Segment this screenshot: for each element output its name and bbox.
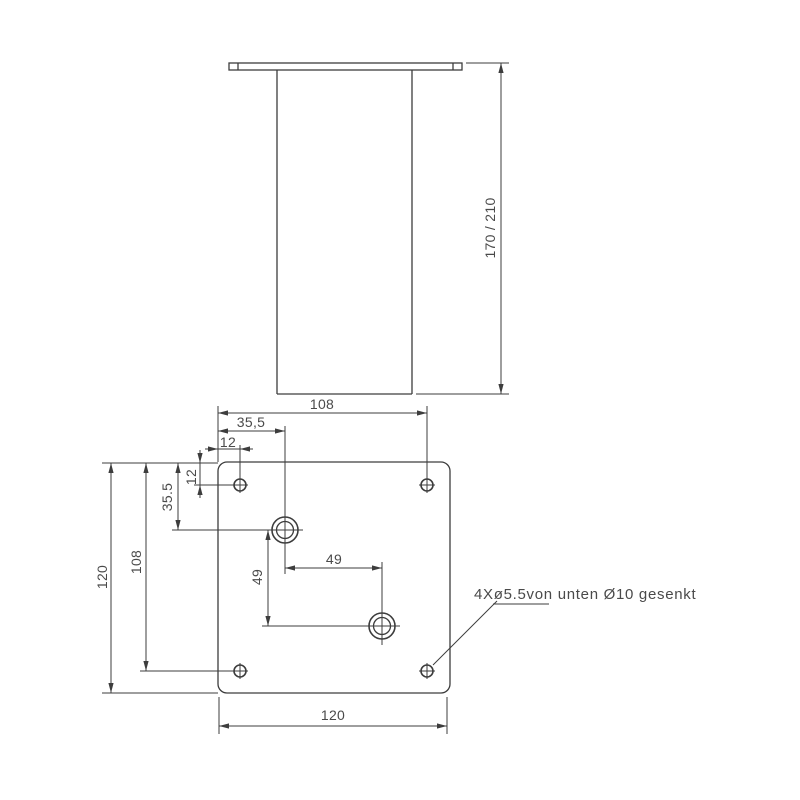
dim-bottom-plate-size: 120 [219, 697, 447, 734]
dim-label-49-vertical: 49 [249, 569, 265, 585]
leader-line [433, 601, 497, 665]
dim-top-hole-span: 108 [218, 396, 427, 413]
dim-label-12-left: 12 [183, 469, 199, 485]
technical-drawing-page: 170 / 210 [0, 0, 800, 800]
hole-note-text: 4Xø5.5von unten Ø10 gesenkt [474, 586, 697, 603]
dim-big-hole-pitch-y: 49 [249, 530, 268, 626]
dim-left-hole-span: 108 [128, 463, 146, 671]
hole-note: 4Xø5.5von unten Ø10 gesenkt [433, 586, 697, 665]
corner-hole-bottom-right [419, 663, 435, 679]
plan-view: 108 35,5 12 120 108 35.5 12 [94, 396, 697, 734]
dim-top-corner-hole-offset: 12 [205, 434, 253, 450]
dim-label-120-left: 120 [94, 565, 110, 589]
dim-label-120-bottom: 120 [321, 707, 345, 723]
dim-left-big-hole-offset: 35.5 [159, 463, 178, 530]
dim-big-hole-pitch-x: 49 [285, 551, 382, 568]
dim-column-height: 170 / 210 [416, 63, 509, 394]
flange-plate-side [229, 63, 462, 70]
dim-label-49-horizontal: 49 [326, 551, 342, 567]
dim-top-big-hole-offset: 35,5 [218, 414, 285, 431]
dim-label-35-5-top: 35,5 [237, 414, 265, 430]
dim-left-plate-size: 120 [94, 463, 111, 693]
dim-left-corner-hole-offset: 12 [183, 450, 200, 498]
dim-label-12-top: 12 [220, 434, 236, 450]
dim-label-108-left: 108 [128, 550, 144, 574]
dim-label-column-height: 170 / 210 [482, 197, 498, 258]
side-view: 170 / 210 [229, 63, 509, 394]
dim-label-35-5-left: 35.5 [159, 483, 175, 511]
drawing-canvas: 170 / 210 [0, 0, 800, 800]
dim-label-108-top: 108 [310, 396, 334, 412]
